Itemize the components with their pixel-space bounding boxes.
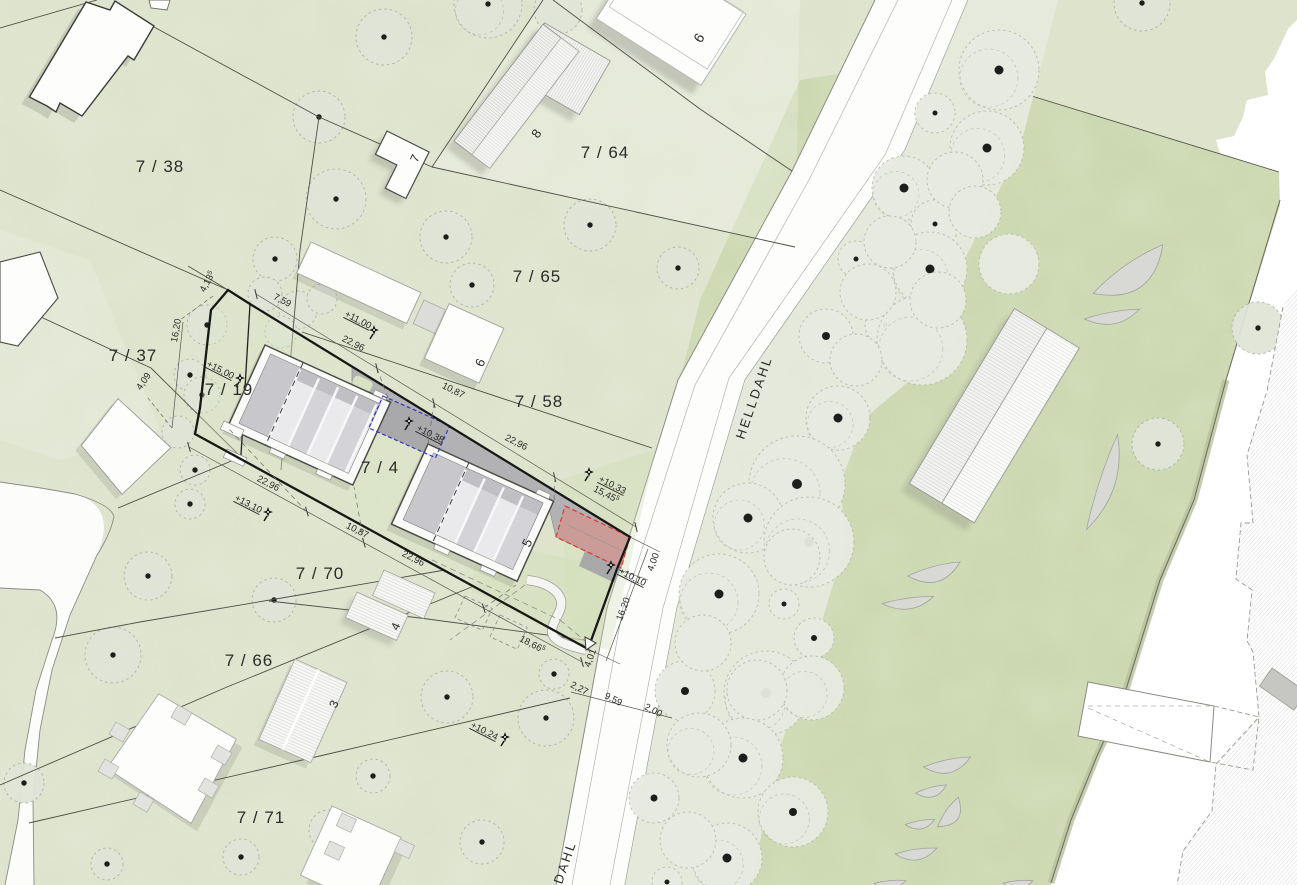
svg-text:7 / 58: 7 / 58 <box>515 392 564 411</box>
svg-text:7 / 66: 7 / 66 <box>225 651 274 670</box>
svg-text:7 / 65: 7 / 65 <box>513 267 562 286</box>
svg-text:7 / 19: 7 / 19 <box>205 380 254 399</box>
svg-text:7 / 37: 7 / 37 <box>109 346 158 365</box>
svg-text:7 / 71: 7 / 71 <box>237 808 286 827</box>
svg-text:7 / 38: 7 / 38 <box>136 157 185 176</box>
svg-text:7 / 70: 7 / 70 <box>296 564 345 583</box>
svg-text:7 / 4: 7 / 4 <box>361 458 399 477</box>
svg-text:7 / 64: 7 / 64 <box>581 143 630 162</box>
